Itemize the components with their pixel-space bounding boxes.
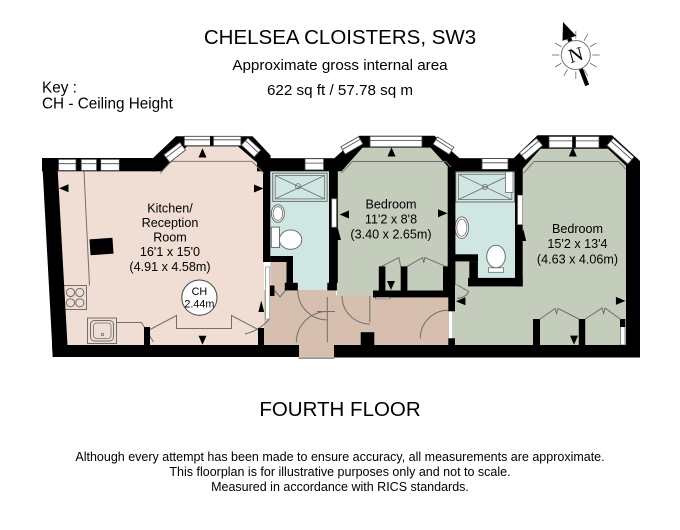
svg-text:FOURTH FLOOR: FOURTH FLOOR	[259, 398, 420, 421]
svg-text:Bedroom: Bedroom	[552, 222, 603, 236]
svg-text:Key :: Key :	[42, 80, 77, 97]
svg-text:(3.40 x 2.65m): (3.40 x 2.65m)	[350, 228, 431, 242]
svg-text:622 sq ft / 57.78 sq m: 622 sq ft / 57.78 sq m	[267, 82, 413, 99]
svg-text:11'2 x 8'8: 11'2 x 8'8	[365, 213, 417, 227]
svg-text:15'2 x 13'4: 15'2 x 13'4	[547, 237, 607, 251]
svg-text:Bedroom: Bedroom	[365, 198, 416, 212]
svg-text:CH: CH	[192, 286, 208, 298]
svg-text:2.44m: 2.44m	[184, 298, 214, 310]
svg-text:Room: Room	[153, 231, 187, 245]
svg-text:CHELSEA CLOISTERS, SW3: CHELSEA CLOISTERS, SW3	[204, 26, 476, 49]
svg-text:Approximate gross internal are: Approximate gross internal area	[232, 57, 448, 74]
svg-text:Measured in accordance with RI: Measured in accordance with RICS standar…	[211, 480, 469, 494]
svg-text:Although every attempt has bee: Although every attempt has been made to …	[75, 450, 604, 464]
svg-text:(4.91 x 4.58m): (4.91 x 4.58m)	[129, 260, 210, 274]
svg-text:Reception: Reception	[142, 216, 199, 230]
svg-text:(4.63 x 4.06m): (4.63 x 4.06m)	[537, 253, 618, 267]
svg-text:CH - Ceiling Height: CH - Ceiling Height	[42, 96, 174, 113]
svg-text:Kitchen/: Kitchen/	[147, 202, 193, 216]
svg-text:This floorplan is for illustra: This floorplan is for illustrative purpo…	[169, 465, 510, 479]
svg-text:16'1 x 15'0: 16'1 x 15'0	[140, 245, 200, 259]
